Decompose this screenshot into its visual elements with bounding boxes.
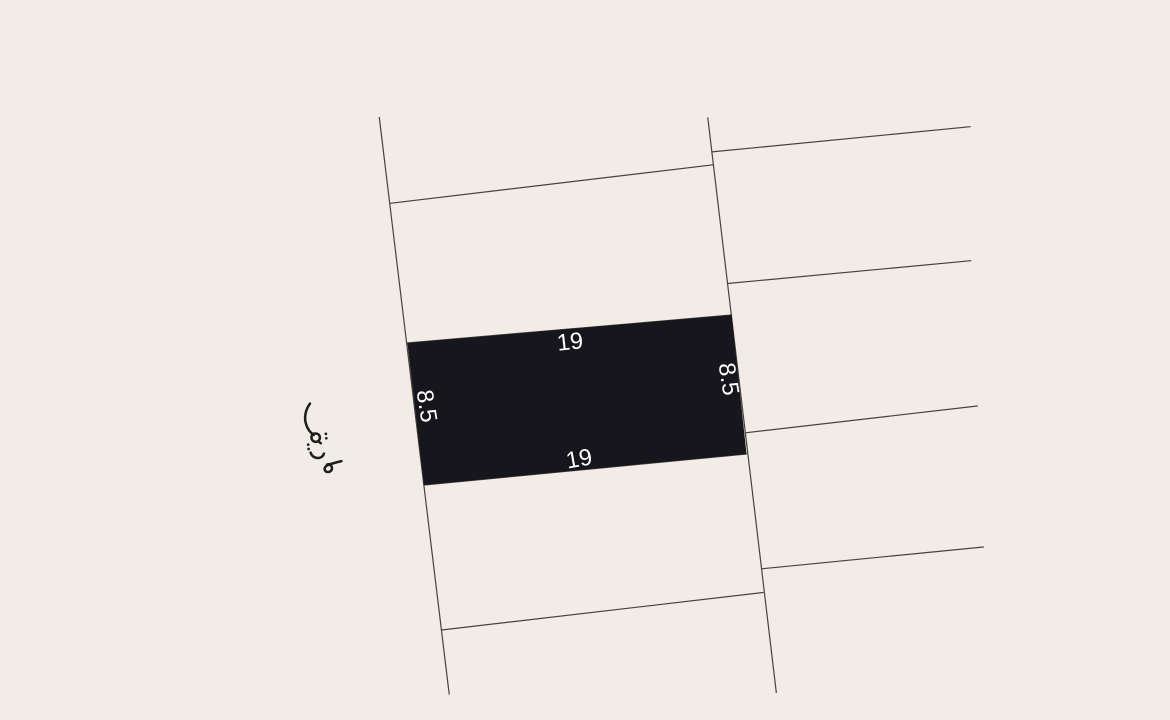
svg-text:19: 19 [556,327,585,356]
svg-text:8.5: 8.5 [412,388,443,424]
svg-text:8.5: 8.5 [714,361,745,397]
svg-text:19: 19 [564,443,594,473]
